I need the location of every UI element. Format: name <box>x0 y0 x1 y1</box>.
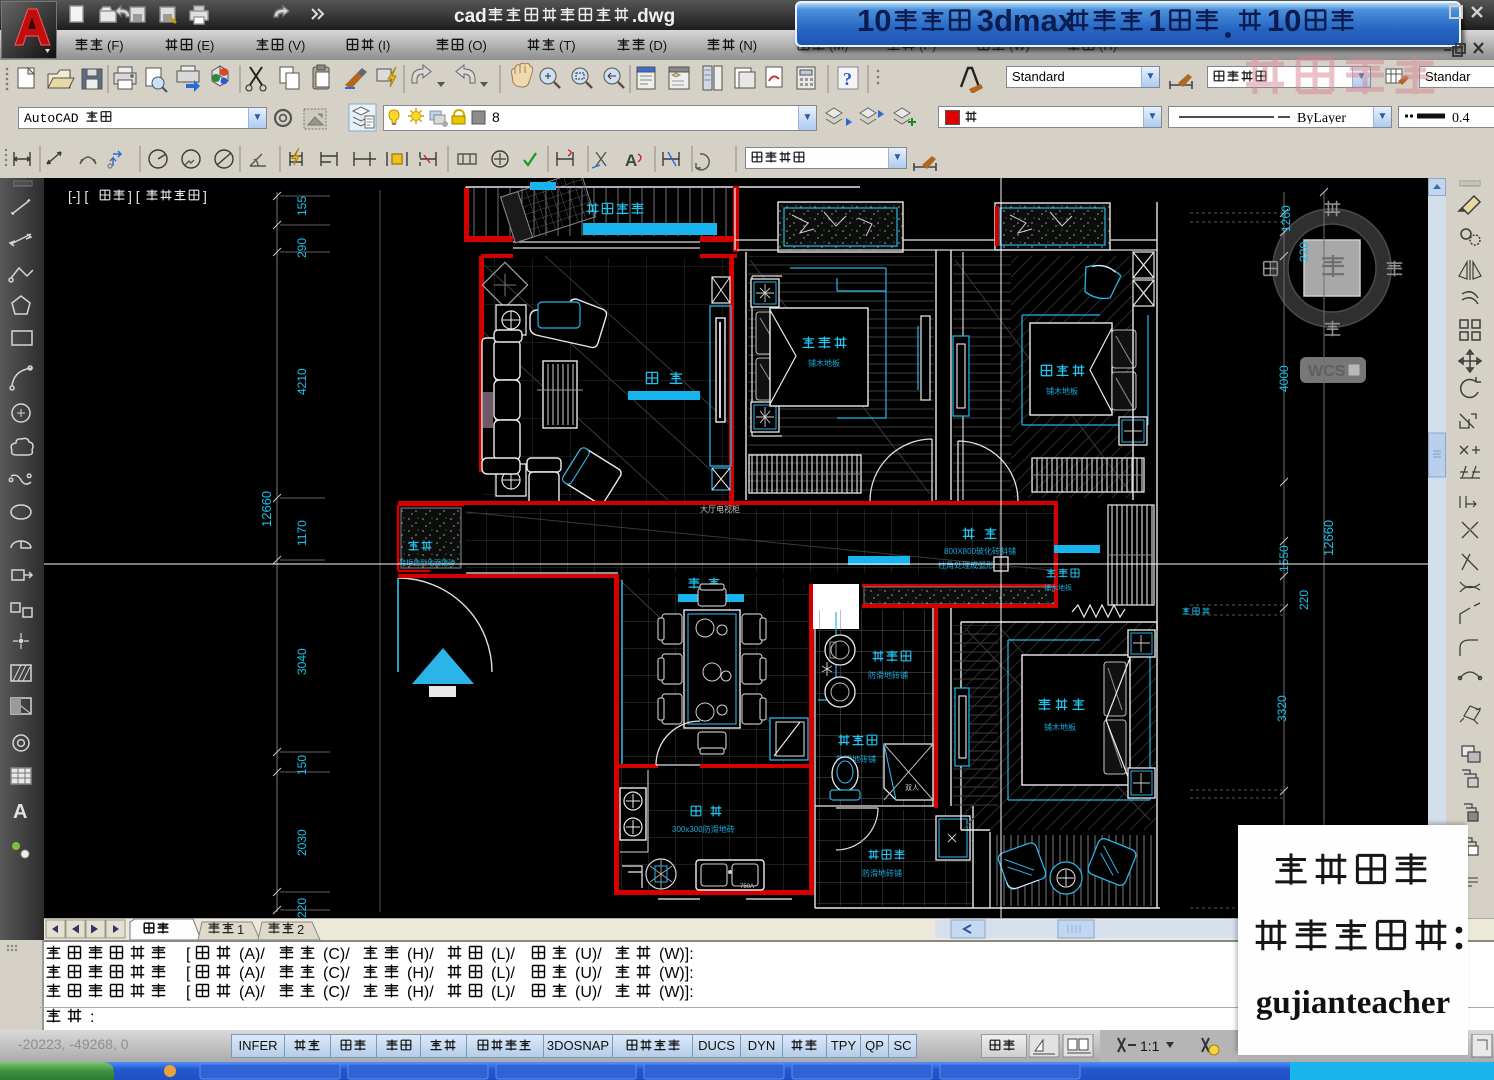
svg-text:12660: 12660 <box>259 491 274 527</box>
svg-text:220: 220 <box>1297 590 1311 610</box>
svg-text:?: ? <box>843 69 852 89</box>
svg-text:铺木地板: 铺木地板 <box>1046 386 1078 396</box>
svg-text:1170: 1170 <box>295 520 309 546</box>
svg-text:(H)/: (H)/ <box>407 965 434 982</box>
svg-text:4000: 4000 <box>1277 365 1291 392</box>
svg-text:铺木地板: 铺木地板 <box>1044 583 1072 592</box>
svg-text:4210: 4210 <box>295 368 309 395</box>
svg-text:防滑地砖铺: 防滑地砖铺 <box>868 670 908 680</box>
svg-text:(V): (V) <box>288 38 305 53</box>
svg-text:(F): (F) <box>107 38 124 53</box>
svg-text:290: 290 <box>295 238 309 258</box>
svg-text:(A)/: (A)/ <box>239 965 265 982</box>
svg-text:(U)/: (U)/ <box>575 984 602 1001</box>
svg-text:(W)]:: (W)]: <box>659 984 694 1001</box>
svg-text:防滑地砖铺: 防滑地砖铺 <box>862 868 902 878</box>
svg-text:1:1: 1:1 <box>1140 1038 1160 1054</box>
svg-text:(C)/: (C)/ <box>323 984 350 1001</box>
svg-text:ByLayer: ByLayer <box>1297 111 1346 124</box>
svg-text:12660: 12660 <box>1321 520 1336 556</box>
svg-text:[: [ <box>186 946 191 963</box>
svg-text:(T): (T) <box>559 38 576 53</box>
svg-text:(U)/: (U)/ <box>575 946 602 963</box>
svg-text:(U)/: (U)/ <box>575 965 602 982</box>
svg-text:8: 8 <box>492 109 500 125</box>
svg-text:800X800玻化砖斜铺: 800X800玻化砖斜铺 <box>944 546 1016 556</box>
svg-text:[: [ <box>186 965 191 982</box>
svg-text:铺木地板: 铺木地板 <box>1044 722 1076 732</box>
svg-text:(I): (I) <box>378 38 390 53</box>
svg-text:10: 10 <box>857 3 891 38</box>
svg-text:1260: 1260 <box>1279 205 1293 232</box>
svg-text:]: ] <box>203 188 207 204</box>
svg-text:] [: ] [ <box>128 188 140 204</box>
svg-text:220: 220 <box>1297 242 1311 262</box>
svg-text:(O): (O) <box>468 38 487 53</box>
svg-text:150: 150 <box>295 755 309 775</box>
svg-text:柱角处理成弧形: 柱角处理成弧形 <box>938 560 994 570</box>
svg-text:(N): (N) <box>739 38 757 53</box>
svg-text:(A)/: (A)/ <box>239 946 265 963</box>
svg-text:(H)/: (H)/ <box>407 984 434 1001</box>
svg-text:3040: 3040 <box>295 648 309 675</box>
svg-text:2030: 2030 <box>295 829 309 856</box>
svg-text:10: 10 <box>1267 3 1301 38</box>
svg-text:(C)/: (C)/ <box>323 946 350 963</box>
svg-text:(W)]:: (W)]: <box>659 946 694 963</box>
svg-text:0.4: 0.4 <box>1452 111 1470 124</box>
svg-text:1: 1 <box>237 922 244 937</box>
svg-text:1550: 1550 <box>1277 545 1291 572</box>
svg-text:[: [ <box>186 984 191 1001</box>
svg-text:(L)/: (L)/ <box>491 946 516 963</box>
svg-text:300x300防滑地砖: 300x300防滑地砖 <box>672 824 735 834</box>
svg-text:750A: 750A <box>740 884 754 890</box>
svg-text:155: 155 <box>295 196 309 216</box>
svg-text:鞋柜造型地面铺砖: 鞋柜造型地面铺砖 <box>399 558 455 567</box>
svg-text:(E): (E) <box>197 38 214 53</box>
svg-text:WCS: WCS <box>1308 363 1346 380</box>
svg-text::: : <box>90 1009 94 1026</box>
svg-text:双人: 双人 <box>905 784 919 792</box>
svg-text:220: 220 <box>295 898 309 918</box>
svg-text:A: A <box>625 151 637 170</box>
svg-text:(L)/: (L)/ <box>491 984 516 1001</box>
svg-text:3dmax: 3dmax <box>977 3 1076 38</box>
svg-text:(D): (D) <box>649 38 667 53</box>
svg-text:(C)/: (C)/ <box>323 965 350 982</box>
svg-text:2: 2 <box>297 922 304 937</box>
svg-text:1: 1 <box>1149 3 1166 38</box>
svg-text:(H)/: (H)/ <box>407 946 434 963</box>
svg-text:(W)]:: (W)]: <box>659 965 694 982</box>
svg-text:(L)/: (L)/ <box>491 965 516 982</box>
svg-text:A: A <box>13 801 27 823</box>
svg-text:铺木地板: 铺木地板 <box>808 358 840 368</box>
svg-text:(A)/: (A)/ <box>239 984 265 1001</box>
svg-text:[-] [: [-] [ <box>68 188 88 204</box>
svg-text:3320: 3320 <box>1275 695 1289 722</box>
